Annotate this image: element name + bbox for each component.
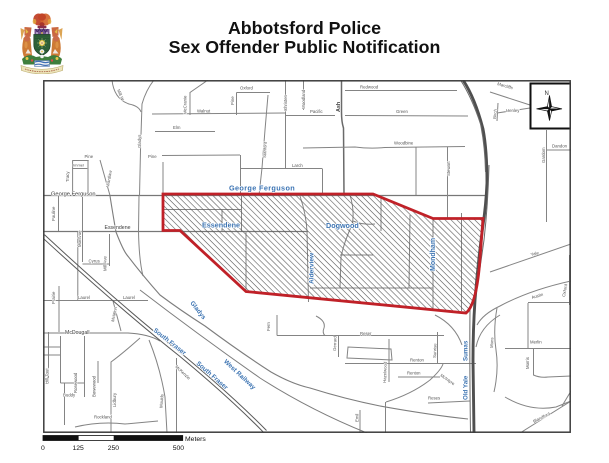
svg-text:Essendene: Essendene: [105, 225, 131, 231]
svg-text:Stewart: Stewart: [446, 161, 451, 176]
svg-text:Birch: Birch: [492, 108, 498, 119]
svg-text:Pacific: Pacific: [310, 109, 324, 114]
svg-text:0: 0: [41, 445, 45, 452]
svg-text:McCranie: McCranie: [183, 95, 188, 114]
svg-text:Pine: Pine: [230, 96, 235, 105]
svg-text:Gladys: Gladys: [137, 135, 142, 148]
svg-text:Green: Green: [396, 109, 409, 114]
svg-text:Yale: Yale: [530, 250, 540, 257]
svg-text:Woodland: Woodland: [301, 89, 306, 109]
svg-text:Oxford: Oxford: [240, 86, 254, 91]
svg-text:N: N: [545, 91, 549, 97]
svg-text:Essendene: Essendene: [202, 221, 240, 230]
svg-text:Woodbine: Woodbine: [394, 141, 414, 146]
svg-text:Henley: Henley: [506, 108, 520, 113]
svg-text:Fern: Fern: [266, 322, 271, 331]
svg-text:Reses: Reses: [428, 396, 440, 401]
svg-text:Wardlaw: Wardlaw: [105, 169, 113, 187]
svg-text:Renton: Renton: [410, 358, 424, 363]
svg-text:Lidbury: Lidbury: [112, 392, 117, 407]
svg-text:Montvue: Montvue: [77, 230, 82, 247]
svg-text:Ash: Ash: [336, 102, 342, 112]
svg-text:McIntyre: McIntyre: [439, 373, 456, 387]
svg-text:McDougall: McDougall: [65, 330, 90, 336]
svg-text:125: 125: [73, 445, 85, 452]
svg-text:Pine: Pine: [85, 154, 94, 159]
svg-text:Austin: Austin: [531, 292, 544, 300]
svg-text:Buddy: Buddy: [63, 393, 76, 398]
svg-text:Elm: Elm: [173, 125, 181, 130]
svg-text:Gardom: Gardom: [541, 147, 546, 163]
svg-text:Morris: Morris: [525, 357, 530, 369]
svg-text:Marcliffe: Marcliffe: [497, 81, 514, 90]
svg-text:Pine: Pine: [148, 154, 157, 159]
svg-text:Pauline: Pauline: [51, 206, 56, 221]
svg-text:Dogwood: Dogwood: [326, 221, 359, 230]
svg-text:Laurel: Laurel: [78, 295, 90, 300]
svg-text:Old Yale: Old Yale: [463, 375, 470, 400]
svg-text:Laurel: Laurel: [123, 295, 135, 300]
svg-text:Merlin: Merlin: [530, 340, 542, 345]
svg-text:Blandford: Blandford: [532, 411, 551, 424]
svg-text:Redwood: Redwood: [360, 85, 379, 90]
svg-text:Meters: Meters: [185, 436, 206, 443]
svg-text:500: 500: [173, 445, 185, 452]
svg-text:Tracy: Tracy: [65, 171, 70, 182]
svg-text:Rosewood: Rosewood: [73, 372, 78, 393]
svg-text:Bowewood: Bowewood: [92, 375, 97, 397]
svg-text:Walnut: Walnut: [197, 109, 211, 114]
svg-text:Hill-Tout: Hill-Tout: [45, 368, 50, 384]
svg-text:Moulds: Moulds: [159, 394, 165, 408]
svg-text:Cyrus: Cyrus: [89, 259, 100, 264]
svg-text:Larch: Larch: [292, 163, 303, 168]
svg-text:Mons: Mons: [489, 337, 494, 348]
svg-text:Alderview: Alderview: [309, 252, 316, 284]
svg-text:Christen: Christen: [283, 94, 288, 111]
svg-text:Hazelwood: Hazelwood: [382, 361, 388, 383]
svg-text:250: 250: [108, 445, 120, 452]
svg-text:George Ferguson: George Ferguson: [51, 191, 96, 197]
svg-text:Gladys: Gladys: [188, 300, 207, 321]
svg-text:Mill Ave: Mill Ave: [103, 256, 108, 271]
svg-text:Renton: Renton: [407, 371, 421, 376]
svg-text:Sumas: Sumas: [463, 340, 470, 361]
svg-text:Dandon: Dandon: [552, 144, 568, 149]
svg-text:Stanford: Stanford: [262, 141, 268, 158]
svg-text:Prairie: Prairie: [51, 291, 56, 304]
svg-text:South Fraser: South Fraser: [152, 327, 188, 357]
svg-text:Immel: Immel: [73, 163, 84, 168]
svg-text:Sunrise: Sunrise: [432, 343, 438, 358]
svg-text:Reser: Reser: [360, 331, 372, 336]
svg-text:George Ferguson: George Ferguson: [229, 184, 295, 193]
svg-text:Rockland: Rockland: [94, 415, 113, 420]
svg-text:Mondham: Mondham: [430, 238, 437, 271]
svg-text:Emil: Emil: [355, 414, 360, 422]
svg-text:Gerrard: Gerrard: [332, 335, 338, 351]
svg-text:Oxford: Oxford: [561, 283, 568, 297]
svg-text:McMinn: McMinn: [110, 306, 118, 322]
